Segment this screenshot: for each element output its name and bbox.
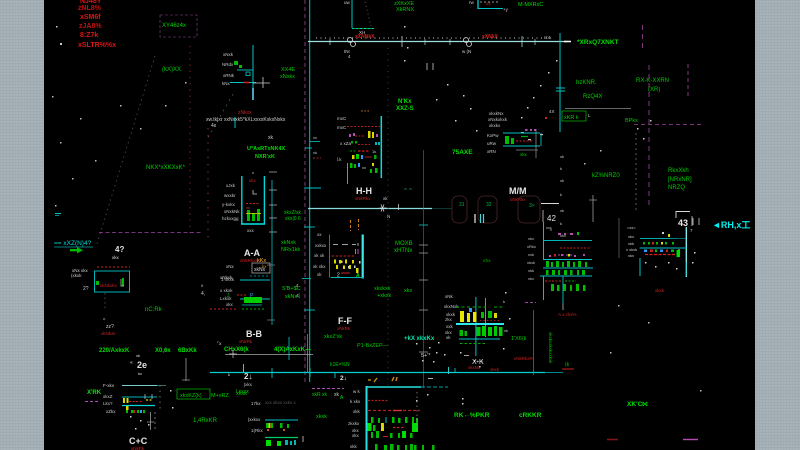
svg-text:xRkx: xRkx [527, 244, 536, 249]
svg-text:|xkx: |xkx [244, 382, 253, 387]
svg-text:x x x: x x x [361, 108, 369, 113]
svg-text:xxk: xxk [528, 252, 534, 257]
svg-text:xkNx: xkNx [254, 267, 266, 273]
svg-text:S'B+$C: S'B+$C [282, 286, 301, 292]
svg-text:xkNxk: xkNxk [281, 240, 296, 246]
svg-text:xkx: xkx [226, 302, 234, 307]
svg-text:zz?: zz? [106, 324, 114, 330]
svg-text:x'kx: x'kx [483, 258, 491, 263]
svg-text:xkxNxk: xkxNxk [444, 304, 459, 309]
svg-text:xkxk: xkxk [527, 260, 535, 265]
svg-text:w k: w k [353, 389, 361, 394]
svg-text:xkxk: xkxk [490, 367, 500, 372]
svg-text:8:Z7k: 8:Z7k [80, 32, 98, 39]
svg-text:cRKKR: cRKKR [519, 412, 542, 419]
svg-text:nC:Rk: nC:Rk [145, 307, 163, 313]
svg-text:B-B: B-B [246, 329, 262, 339]
svg-text:k1E=%N: k1E=%N [330, 362, 350, 368]
svg-text:2e: 2e [137, 360, 147, 370]
svg-text:xx: xx [362, 165, 366, 170]
svg-text:xkk: xkk [628, 241, 634, 246]
svg-text:NRZQ: NRZQ [668, 185, 685, 191]
svg-text:17kx: 17kx [251, 401, 261, 406]
svg-text:(k: (k [565, 362, 570, 368]
svg-text:xNx: xNx [226, 264, 234, 269]
svg-text:zNkxx: zNkxx [238, 110, 252, 116]
svg-text:w (N: w (N [462, 49, 471, 54]
svg-text:uRw: uRw [487, 141, 497, 146]
svg-text:k: k [560, 166, 562, 171]
svg-text:== xXZ(N)4?: == xXZ(N)4? [54, 240, 92, 247]
svg-text:xk: xk [560, 154, 564, 159]
svg-text:NRdx: NRdx [222, 62, 234, 67]
svg-text:X0,6x: X0,6x [155, 348, 171, 354]
svg-text:2↓: 2↓ [244, 372, 252, 381]
svg-text:zkxkx: zkxkx [348, 421, 360, 426]
svg-text:xkR xk: xkR xk [312, 392, 328, 398]
svg-text:xx: xx [246, 205, 250, 210]
svg-text:wxxkr: wxxkr [224, 193, 236, 198]
svg-text:xkNkxk: xkNkxk [101, 331, 116, 336]
svg-text:Lxxxx: Lxxxx [236, 389, 249, 395]
svg-text:+kX xkxKx: +kX xkxKx [404, 336, 435, 342]
svg-text:xkxk: xkxk [316, 414, 327, 420]
svg-text:kNx: kNx [222, 81, 230, 86]
svg-text:NRx1kk: NRx1kk [281, 247, 301, 253]
svg-text:zNL8%: zNL8% [78, 5, 102, 12]
svg-text:xk: xk [268, 135, 274, 141]
svg-text:42: 42 [547, 214, 556, 223]
svg-text:4X: 4X [549, 109, 555, 114]
svg-text:xNxkxkxk: xNxkxkxk [488, 117, 508, 122]
svg-text:xNkRkx: xNkRkx [355, 196, 371, 201]
svg-text:xxk: xxk [446, 324, 454, 329]
svg-text:zkx: zkx [445, 317, 453, 322]
svg-text:|xxkxx: |xxkxx [248, 417, 261, 422]
svg-text:hzkxxgg: hzkxxgg [222, 216, 239, 221]
svg-text:4?: 4? [115, 245, 124, 254]
svg-text:32: 32 [486, 202, 492, 208]
svg-text:xXNkX: xXNkX [482, 34, 499, 40]
svg-text:[NRxNR]: [NRxNR] [668, 177, 692, 183]
svg-text:xNkRkxk: xNkRkxk [240, 258, 258, 263]
svg-text:75AXE: 75AXE [452, 149, 473, 156]
svg-text:xx: xx [313, 135, 317, 140]
svg-text:(kX)XX: (kX)XX [162, 67, 181, 73]
svg-text:xRNk: xRNk [223, 73, 235, 78]
svg-text:A: A [356, 273, 360, 279]
svg-text:k xkx: k xkx [350, 399, 361, 404]
svg-text:xkx: xkx [528, 276, 534, 281]
svg-text:kx: kx [138, 371, 142, 376]
svg-text:x xkxk: x xkxk [626, 247, 637, 252]
svg-text:MOXB: MOXB [395, 241, 413, 247]
svg-text:F-F: F-F [338, 316, 352, 326]
svg-text:xkx: xkx [404, 288, 413, 294]
svg-text:2?: 2? [83, 286, 89, 292]
svg-text:xkxNx: xkxNx [468, 365, 481, 370]
svg-text:XH: XH [359, 30, 365, 35]
svg-text:xNkRk: xNkRk [337, 326, 351, 331]
svg-text:+ '+: + '+ [476, 359, 484, 364]
svg-text:H-H: H-H [356, 186, 372, 196]
svg-text:1'X6(k: 1'X6(k [511, 336, 527, 342]
svg-text:xkxkx: xkxkx [489, 123, 501, 128]
svg-text:CHxX6(k: CHxX6(k [224, 347, 249, 353]
svg-text:k: k [560, 221, 562, 226]
svg-text:xkxZ'xk: xkxZ'xk [324, 334, 342, 340]
svg-text:6BxKk: 6BxKk [178, 348, 197, 354]
svg-text:xx: xx [317, 232, 322, 237]
svg-text:31: 31 [459, 202, 465, 208]
svg-text:KxPw: KxPw [487, 133, 499, 138]
svg-text:220/AxkxK: 220/AxkxK [99, 348, 130, 354]
svg-text:xk: xk [313, 150, 317, 155]
svg-text:xk xk: xk xk [314, 253, 325, 258]
svg-text:4,: 4, [201, 291, 205, 297]
svg-text:xxx xkxx xxkx x: xxx xkxx xxkx x [265, 400, 297, 405]
svg-text:4x: 4x [211, 123, 217, 129]
svg-text:=xx=: =xx= [627, 225, 636, 230]
svg-text:BPkx: BPkx [625, 118, 638, 124]
svg-text:F-xkx: F-xkx [103, 383, 115, 388]
svg-text:x xZa: x xZa [340, 141, 351, 146]
svg-text:43: 43 [678, 218, 688, 228]
svg-text:xk xkx: xk xkx [313, 264, 326, 269]
svg-text:RX-K·XXRN: RX-K·XXRN [636, 78, 669, 84]
svg-text:xkx: xkx [112, 255, 120, 260]
svg-text:xx: xx [486, 1, 491, 6]
svg-text:XkRNX: XkRNX [396, 7, 414, 13]
svg-text:xxx: xxx [247, 228, 255, 233]
svg-text:1,4RxKR: 1,4RxKR [193, 418, 218, 424]
svg-text:xkxKZ(k): xkxKZ(k) [180, 393, 202, 399]
svg-text:RkxXkh: RkxXkh [668, 168, 689, 174]
svg-text:A.x.zkx%: A.x.zkx% [558, 312, 577, 317]
svg-text:xkxkxxkxkxxkxk: xkxkxxkxkxxkxk [548, 332, 553, 364]
svg-text:3>: 3> [529, 203, 535, 209]
svg-text:rw: rw [469, 0, 474, 5]
svg-text:5+'*: 5+'* [421, 353, 431, 359]
svg-text:xSLTR%%x: xSLTR%%x [78, 42, 116, 49]
svg-text:uw: uw [344, 0, 351, 5]
svg-text:C+C: C+C [129, 436, 148, 446]
svg-text:U*AxRTxNK4X: U*AxRTxNK4X [247, 146, 286, 152]
svg-text:xJxk: xJxk [226, 183, 236, 188]
svg-text:«: « [130, 360, 133, 366]
svg-text:hzKNR.: hzKNR. [576, 80, 597, 86]
svg-text:RK←%PKR: RK←%PKR [454, 412, 490, 419]
svg-text:xRN: xRN [487, 149, 496, 154]
svg-text:NKX*xXKXxK*: NKX*xXKXxK* [146, 165, 186, 171]
svg-text:y-kxkx: y-kxkx [222, 202, 235, 207]
svg-text:M+xRZ: M+xRZ [211, 393, 230, 399]
svg-text:zJA8%: zJA8% [79, 23, 102, 30]
svg-text:xk: xk [560, 178, 564, 183]
svg-text:P1-BxZEP—: P1-BxZEP— [357, 343, 389, 349]
svg-text:A-A: A-A [244, 248, 260, 258]
svg-text:xkk: xkk [350, 444, 358, 449]
svg-text:xkxk: xkxk [655, 288, 665, 293]
svg-text:NXR'xK: NXR'xK [255, 154, 275, 160]
svg-text:xkx: xkx [249, 178, 257, 183]
svg-text:M-MXRxC: M-MXRxC [518, 2, 543, 8]
svg-text:+y: +y [503, 7, 509, 12]
svg-text:rz4: rz4 [544, 35, 551, 40]
svg-text:M/M: M/M [509, 186, 527, 196]
svg-text:xkx: xkx [528, 236, 534, 241]
svg-text:xk: xk [504, 328, 508, 333]
svg-text:kZ%NRZ0: kZ%NRZ0 [592, 173, 620, 179]
svg-text:xNxkx: xNxkx [280, 74, 295, 80]
svg-text:k: k [560, 192, 562, 197]
svg-text:⌜x: ⌜x [217, 341, 222, 346]
svg-text:xxkxx: xxkxx [315, 243, 327, 248]
svg-text:xkxZ: xkxZ [103, 394, 113, 399]
svg-text:◄RH,x工: ◄RH,x工 [712, 220, 750, 230]
svg-text:XY46z4x: XY46z4x [162, 23, 186, 29]
svg-text:xw.tk|xr xxNxxk5*kXLxxxxKxkxNx: xw.tk|xr xxNxxk5*kXLxxxxKxkxNxkx [206, 117, 286, 123]
svg-text:xSM6f: xSM6f [80, 14, 101, 21]
svg-text:xNkRk: xNkRk [239, 339, 253, 344]
svg-text:xkx|0.6: xkx|0.6 [285, 216, 301, 222]
svg-text:1(Rkx: 1(Rkx [251, 428, 264, 433]
svg-text:(XR): (XR) [648, 87, 660, 93]
svg-text:RzQ4X: RzQ4X [583, 94, 602, 100]
svg-text:xNkRkxR: xNkRkxR [514, 356, 533, 361]
svg-text:xHTNx: xHTNx [394, 248, 412, 254]
svg-text:2↓: 2↓ [340, 375, 347, 382]
svg-text:+xkxk: +xkxk [377, 293, 391, 299]
svg-text:xkx: xkx [628, 234, 634, 239]
svg-text:xk: xk [383, 196, 388, 201]
svg-text:xZkx: xZkx [106, 409, 116, 414]
svg-text:xkx: xkx [628, 253, 634, 258]
svg-text:xk: xk [560, 208, 564, 213]
svg-text:XXZ-S: XXZ-S [396, 106, 414, 112]
svg-text:xk: xk [446, 335, 451, 340]
svg-text:XX4E: XX4E [281, 67, 295, 73]
svg-text:XK'C⨝: XK'C⨝ [627, 401, 648, 408]
svg-text:xkxkNx: xkxkNx [489, 111, 504, 116]
svg-text:N: N [387, 214, 390, 219]
svg-text:1k: 1k [372, 149, 376, 154]
svg-text:4(X)AxKxK—: 4(X)AxKxK— [274, 347, 311, 353]
svg-text:X'RK: X'RK [87, 390, 102, 396]
svg-text:xNkRk: xNkRk [131, 446, 145, 450]
svg-text:mxC: mxC [337, 125, 347, 130]
svg-text:xkNkxkx: xkNkxkx [100, 283, 117, 288]
svg-text:mxC: mxC [337, 116, 347, 121]
svg-text:xKR k: xKR k [564, 115, 579, 121]
svg-text:Lkx?: Lkx? [103, 401, 113, 406]
svg-text:xkx: xkx [352, 433, 360, 438]
svg-text:N'Kx: N'Kx [398, 99, 412, 105]
svg-text:xNxk: xNxk [223, 52, 234, 57]
svg-text:xkxkxk: xkxkxk [374, 286, 391, 292]
svg-text:(xkxk: (xkxk [71, 273, 82, 278]
svg-text:x: x [252, 170, 254, 175]
svg-text:xk: xk [334, 392, 340, 398]
svg-text:xNxkNk: xNxkNk [224, 209, 240, 214]
svg-text:xNk: xNk [445, 294, 453, 299]
svg-text:k: k [503, 299, 505, 304]
svg-text:xk: xk [317, 272, 322, 277]
svg-text:xkk: xkk [528, 268, 534, 273]
svg-text:l.k: l.k [337, 157, 342, 162]
svg-text:xkNx: xkNx [285, 294, 297, 300]
svg-text:xNkxk: xNkxk [220, 275, 233, 280]
svg-text:xk: xk [136, 353, 140, 358]
svg-text:xkx: xkx [520, 152, 528, 157]
svg-text:xkx: xkx [560, 233, 566, 238]
svg-text:xkk: xkk [353, 409, 361, 414]
svg-text:*XRxQ7XNKT: *XRxQ7XNKT [577, 39, 619, 46]
